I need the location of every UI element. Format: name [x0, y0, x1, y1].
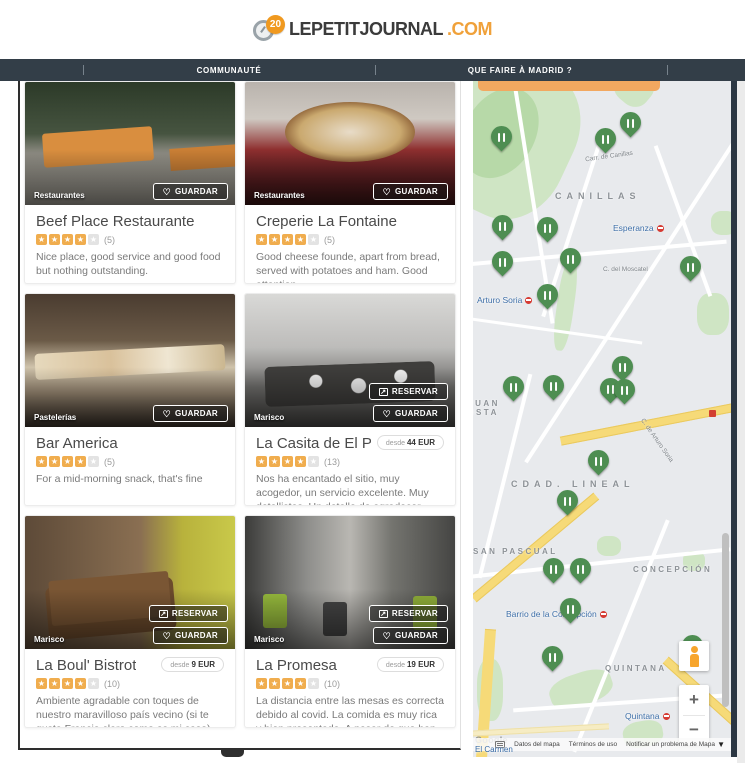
restaurant-name[interactable]: La Casita de El Pradal — [256, 435, 371, 452]
external-link-icon: ↗ — [159, 610, 168, 618]
restaurant-map-pin[interactable] — [539, 371, 569, 401]
star-filled-icon: ★ — [282, 678, 293, 689]
heart-icon: ♡ — [383, 410, 391, 418]
star-rating: ★★★★★(10) — [256, 678, 444, 689]
star-filled-icon: ★ — [36, 678, 47, 689]
fork-knife-icon — [549, 653, 551, 662]
restaurant-photo[interactable]: Marisco ↗RESERVAR ♡GUARDAR — [245, 294, 455, 427]
card-body: La Casita de El Pradal desde44 EUR ★★★★★… — [245, 427, 455, 505]
scrollbar-track — [737, 81, 745, 763]
fork-knife-icon — [567, 255, 569, 264]
fork-knife-icon — [498, 133, 500, 142]
heart-icon: ♡ — [163, 410, 171, 418]
main-nav: COMMUNAUTÉ QUE FAIRE À MADRID ? — [0, 59, 745, 81]
star-filled-icon: ★ — [269, 456, 280, 467]
map-top-button[interactable] — [478, 81, 660, 91]
star-filled-icon: ★ — [62, 234, 73, 245]
map-label: Barrio de la Concepción — [506, 609, 607, 619]
fork-knife-icon — [499, 258, 501, 267]
scrollbar-thumb[interactable] — [722, 533, 729, 707]
metro-station-icon — [600, 611, 607, 618]
fork-knife-icon — [687, 263, 689, 272]
fork-knife-icon — [577, 565, 579, 574]
fork-knife-icon — [602, 135, 604, 144]
restaurant-map-pin[interactable] — [616, 108, 646, 138]
star-rating: ★★★★★(13) — [256, 456, 444, 467]
map-park — [711, 211, 731, 235]
price-badge: desde19 EUR — [377, 657, 444, 672]
map-panel[interactable]: CANILLASEsperanzaArturo SoriaCarr. de Ca… — [473, 81, 731, 757]
card-body: Creperie La Fontaine ★★★★★(5) Good chees… — [245, 205, 455, 283]
logo-suffix: .COM — [447, 19, 492, 40]
review-count: (5) — [104, 457, 115, 467]
card-image-buttons: ♡GUARDAR — [373, 183, 448, 200]
restaurant-name[interactable]: Creperie La Fontaine — [256, 213, 397, 230]
review-count: (10) — [104, 679, 120, 689]
card-body: Beef Place Restaurante ★★★★★(5) Nice pla… — [25, 205, 235, 283]
star-filled-icon: ★ — [256, 456, 267, 467]
review-snippet: Nice place, good service and good food b… — [36, 250, 224, 278]
star-filled-icon: ★ — [49, 678, 60, 689]
map-label-el-carmen: El Carmen — [475, 745, 513, 754]
results-card-grid: Restaurantes ♡GUARDAR Beef Place Restaur… — [24, 81, 456, 728]
star-empty-icon: ★ — [88, 678, 99, 689]
star-filled-icon: ★ — [295, 456, 306, 467]
pegman-control[interactable] — [679, 641, 709, 671]
guardar-button[interactable]: ♡GUARDAR — [373, 627, 448, 644]
restaurant-photo[interactable]: Pastelerías ♡GUARDAR — [25, 294, 235, 427]
star-empty-icon: ★ — [308, 456, 319, 467]
star-empty-icon: ★ — [308, 678, 319, 689]
card-image-buttons: ♡GUARDAR — [153, 405, 228, 422]
fork-knife-icon — [627, 119, 629, 128]
review-snippet: Nos ha encantado el sitio, muy acogedor,… — [256, 472, 444, 505]
metro-station-icon — [525, 297, 532, 304]
nav-separator — [375, 65, 376, 75]
results-panel: Restaurantes ♡GUARDAR Beef Place Restaur… — [18, 81, 461, 750]
star-filled-icon: ★ — [49, 456, 60, 467]
restaurant-card[interactable]: Marisco ↗RESERVAR ♡GUARDAR La Boul' Bist… — [24, 515, 236, 728]
guardar-button[interactable]: ♡GUARDAR — [153, 405, 228, 422]
star-filled-icon: ★ — [256, 678, 267, 689]
map-park — [697, 293, 729, 335]
map-label: Carr. de Canillas — [585, 150, 634, 164]
restaurant-photo[interactable]: Marisco ↗RESERVAR ♡GUARDAR — [25, 516, 235, 649]
guardar-button[interactable]: ♡GUARDAR — [373, 183, 448, 200]
card-body: Bar America ★★★★★(5) For a mid-morning s… — [25, 427, 235, 505]
reservar-button[interactable]: ↗RESERVAR — [369, 383, 448, 400]
category-label: Pastelerías — [34, 413, 76, 422]
star-filled-icon: ★ — [36, 456, 47, 467]
review-snippet: La distancia entre las mesas es correcta… — [256, 694, 444, 727]
star-filled-icon: ★ — [282, 456, 293, 467]
restaurant-card[interactable]: Marisco ↗RESERVAR ♡GUARDAR La Promesa de… — [244, 515, 456, 728]
map-label: CANILLAS — [555, 191, 641, 201]
category-label: Marisco — [254, 635, 284, 644]
logo-clock-icon: 20 — [253, 15, 285, 45]
zoom-in-button[interactable]: + — [679, 685, 709, 715]
nav-item-communaute[interactable]: COMMUNAUTÉ — [197, 59, 262, 81]
star-filled-icon: ★ — [269, 234, 280, 245]
reservar-button[interactable]: ↗RESERVAR — [369, 605, 448, 622]
guardar-button[interactable]: ♡GUARDAR — [373, 405, 448, 422]
nav-separator — [83, 65, 84, 75]
map-label: C. del Moscatel — [603, 266, 648, 273]
restaurant-map-pin[interactable] — [539, 554, 569, 584]
star-filled-icon: ★ — [75, 234, 86, 245]
heart-icon: ♡ — [163, 188, 171, 196]
fork-knife-icon — [564, 497, 566, 506]
heart-icon: ♡ — [163, 632, 171, 640]
star-filled-icon: ★ — [36, 234, 47, 245]
star-empty-icon: ★ — [88, 234, 99, 245]
review-snippet: Ambiente agradable con toques de nuestro… — [36, 694, 224, 727]
card-image-buttons: ♡GUARDAR — [153, 183, 228, 200]
heart-icon: ♡ — [383, 632, 391, 640]
fork-knife-icon — [619, 363, 621, 372]
fork-knife-icon — [567, 605, 569, 614]
star-filled-icon: ★ — [62, 678, 73, 689]
external-link-icon: ↗ — [379, 388, 388, 396]
logo-20-badge: 20 — [266, 15, 285, 34]
map-label: CONCEPCIÓN — [633, 565, 712, 574]
terms-link[interactable]: Términos de uso — [569, 741, 617, 748]
restaurant-name[interactable]: Beef Place Restaurante — [36, 213, 194, 230]
fork-knife-icon — [544, 224, 546, 233]
review-snippet: For a mid-morning snack, that's fine — [36, 472, 224, 486]
fork-knife-icon — [550, 382, 552, 391]
map-label: QUINTANA — [605, 664, 667, 673]
star-rating: ★★★★★(10) — [36, 678, 224, 689]
map-label: SAN JUAN BAUTISTA — [473, 399, 500, 417]
fork-knife-icon — [607, 385, 609, 394]
guardar-button[interactable]: ♡GUARDAR — [153, 627, 228, 644]
star-filled-icon: ★ — [269, 678, 280, 689]
restaurant-name[interactable]: La Promesa — [256, 657, 337, 674]
fork-knife-icon — [621, 386, 623, 395]
review-count: (10) — [324, 679, 340, 689]
map-park — [597, 536, 621, 556]
page: 20 LEPETITJOURNAL.COM COMMUNAUTÉ QUE FAI… — [0, 0, 745, 763]
star-filled-icon: ★ — [295, 234, 306, 245]
star-rating: ★★★★★(5) — [36, 234, 224, 245]
reservar-button[interactable]: ↗RESERVAR — [149, 605, 228, 622]
map-label: SAN PASCUAL — [473, 547, 558, 556]
restaurant-card[interactable]: Marisco ↗RESERVAR ♡GUARDAR La Casita de … — [244, 293, 456, 506]
heart-icon: ♡ — [383, 188, 391, 196]
card-image-buttons: ↗RESERVAR ♡GUARDAR — [149, 605, 228, 644]
star-filled-icon: ★ — [282, 234, 293, 245]
restaurant-photo[interactable]: Restaurantes ♡GUARDAR — [25, 82, 235, 205]
restaurant-name[interactable]: La Boul' Bistrot — [36, 657, 136, 674]
price-badge: desde44 EUR — [377, 435, 444, 450]
star-filled-icon: ★ — [62, 456, 73, 467]
star-rating: ★★★★★(5) — [36, 456, 224, 467]
restaurant-photo[interactable]: Restaurantes ♡GUARDAR — [245, 82, 455, 205]
fork-knife-icon — [510, 383, 512, 392]
map-zoom-control: + − — [679, 685, 709, 745]
category-label: Marisco — [254, 413, 284, 422]
restaurant-map-pin[interactable] — [584, 446, 614, 476]
star-filled-icon: ★ — [49, 234, 60, 245]
category-label: Restaurantes — [254, 191, 305, 200]
category-label: Marisco — [34, 635, 64, 644]
nav-separator — [667, 65, 668, 75]
card-image-buttons: ↗RESERVAR ♡GUARDAR — [369, 383, 448, 422]
restaurant-name[interactable]: Bar America — [36, 435, 118, 452]
restaurant-card[interactable]: Pastelerías ♡GUARDAR Bar America ★★★★★(5… — [24, 293, 236, 506]
collapse-arrow-icon[interactable]: ▼ — [717, 740, 725, 749]
nav-item-que-faire[interactable]: QUE FAIRE À MADRID ? — [468, 59, 572, 81]
review-snippet: Good cheese founde, apart from bread, se… — [256, 250, 444, 283]
report-problem-link[interactable]: Notificar un problema de Mapa — [626, 741, 715, 748]
logo-text: LEPETITJOURNAL — [289, 19, 443, 40]
star-empty-icon: ★ — [88, 456, 99, 467]
restaurant-map-pin[interactable] — [538, 642, 568, 672]
fork-knife-icon — [544, 291, 546, 300]
star-filled-icon: ★ — [295, 678, 306, 689]
fork-knife-icon — [499, 222, 501, 231]
pegman-icon — [691, 646, 698, 653]
star-rating: ★★★★★(5) — [256, 234, 444, 245]
fork-knife-icon — [595, 457, 597, 466]
guardar-button[interactable]: ♡GUARDAR — [153, 183, 228, 200]
price-badge: desde9 EUR — [161, 657, 224, 672]
review-count: (5) — [104, 235, 115, 245]
map-label: Esperanza — [613, 223, 664, 233]
star-empty-icon: ★ — [308, 234, 319, 245]
metro-station-icon — [657, 225, 664, 232]
road-shield-icon — [709, 410, 716, 417]
restaurant-card[interactable]: Restaurantes ♡GUARDAR Beef Place Restaur… — [24, 81, 236, 284]
review-count: (5) — [324, 235, 335, 245]
review-count: (13) — [324, 457, 340, 467]
star-filled-icon: ★ — [256, 234, 267, 245]
card-body: La Promesa desde19 EUR ★★★★★(10) La dist… — [245, 649, 455, 727]
star-filled-icon: ★ — [75, 678, 86, 689]
category-label: Restaurantes — [34, 191, 85, 200]
site-logo[interactable]: 20 LEPETITJOURNAL.COM — [253, 15, 492, 45]
restaurant-map-pin[interactable] — [488, 247, 518, 277]
restaurant-card[interactable]: Restaurantes ♡GUARDAR Creperie La Fontai… — [244, 81, 456, 284]
fork-knife-icon — [550, 565, 552, 574]
map-data-link[interactable]: Datos del mapa — [514, 741, 560, 748]
map-label: CDAD. LINEAL — [511, 479, 635, 489]
site-header: 20 LEPETITJOURNAL.COM — [0, 0, 745, 59]
card-body: La Boul' Bistrot desde9 EUR ★★★★★(10) Am… — [25, 649, 235, 727]
star-filled-icon: ★ — [75, 456, 86, 467]
map-label: Arturo Soria — [477, 295, 532, 305]
results-panel-handle[interactable] — [221, 749, 244, 757]
map-label: Quintana — [625, 711, 670, 721]
restaurant-map-pin[interactable] — [566, 554, 596, 584]
card-image-buttons: ↗RESERVAR ♡GUARDAR — [369, 605, 448, 644]
pegman-icon — [690, 654, 699, 667]
external-link-icon: ↗ — [379, 610, 388, 618]
restaurant-photo[interactable]: Marisco ↗RESERVAR ♡GUARDAR — [245, 516, 455, 649]
metro-station-icon — [663, 713, 670, 720]
